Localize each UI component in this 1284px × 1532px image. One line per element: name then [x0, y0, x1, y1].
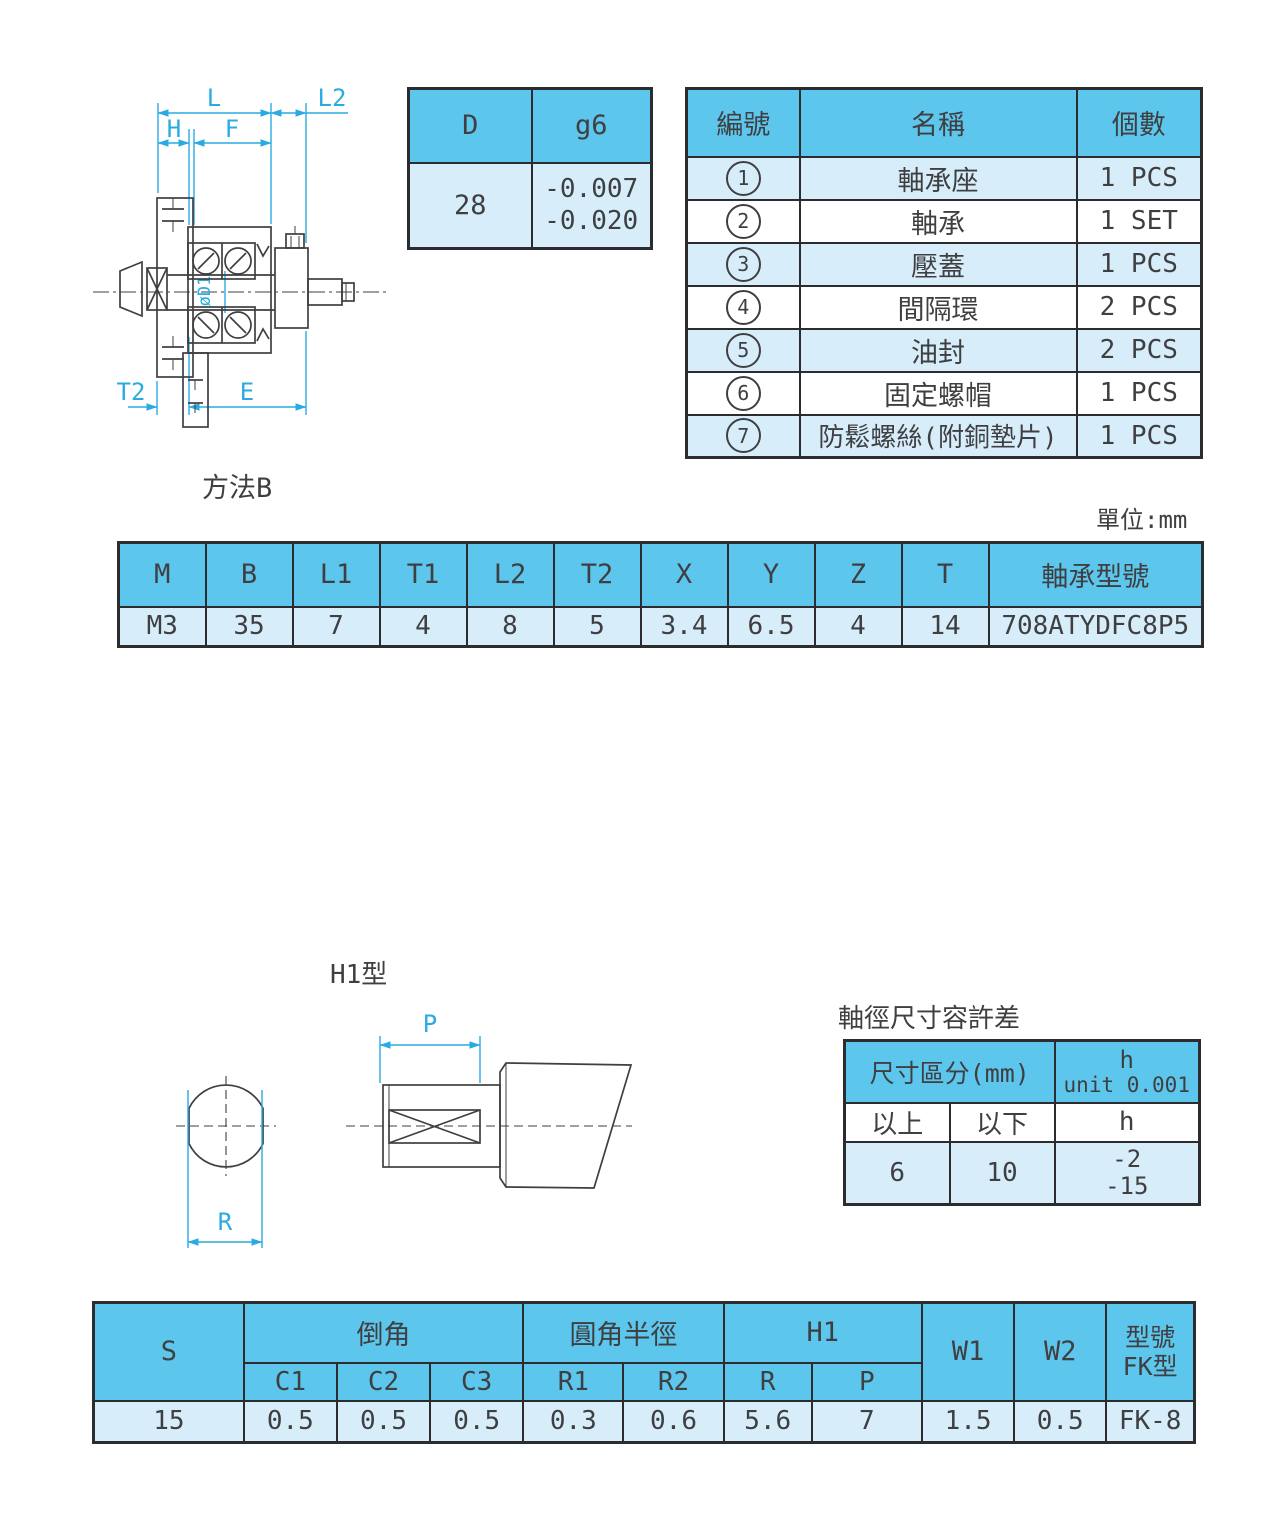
assembly-section-geometry [120, 198, 354, 427]
unit-label: 單位:mm [1096, 500, 1187, 535]
dim-value: 35 [206, 607, 293, 647]
spec-group-h1: H1 [724, 1303, 922, 1363]
parts-col-qty: 個數 [1077, 89, 1202, 157]
spec-value: 15 [94, 1401, 244, 1443]
shaft-fit-table: D g6 28 -0.007 -0.020 [407, 87, 653, 250]
part-number-badge: 2 [726, 204, 761, 239]
parts-list-table: 編號 名稱 個數 1 軸承座 1 PCS 2 軸承 1 SET 3 壓蓋 1 P… [685, 87, 1203, 459]
spec-sub-col: R1 [523, 1363, 623, 1401]
shaft-end-drawing: P R [150, 1000, 700, 1270]
spec-value: 0.5 [1014, 1401, 1106, 1443]
dim-col: L2 [467, 543, 554, 607]
dim-col: T [902, 543, 989, 607]
fit-d-value: 28 [409, 163, 532, 249]
part-name: 防鬆螺絲(附銅墊片) [800, 415, 1077, 458]
dim-col-bearing-model: 軸承型號 [989, 543, 1203, 607]
datasheet-page: L L2 H F T2 E øD1 [0, 0, 1284, 1532]
shaft-tolerance-table: 尺寸區分(mm) h unit 0.001 以上 以下 h 6 10 -2 -1… [843, 1039, 1201, 1206]
dim-col: Y [728, 543, 815, 607]
parts-col-name: 名稱 [800, 89, 1077, 157]
part-qty: 1 PCS [1077, 157, 1202, 200]
dim-col: Z [815, 543, 902, 607]
method-label: 方法B [202, 466, 272, 505]
part-number-badge: 4 [726, 290, 761, 325]
dimension-extension-lines [157, 103, 306, 415]
tolerance-under-value: 10 [950, 1142, 1055, 1205]
spec-value: 0.3 [523, 1401, 623, 1443]
dim-label-H: H [167, 115, 181, 143]
parts-row: 4 間隔環 2 PCS [687, 286, 1202, 329]
spec-col-w1: W1 [922, 1303, 1014, 1401]
spec-value-model: FK-8 [1106, 1401, 1194, 1443]
bearing-assembly-drawing: L L2 H F T2 E øD1 [90, 85, 390, 430]
parts-col-no: 編號 [687, 89, 800, 157]
spec-sub-col: R2 [623, 1363, 723, 1401]
tolerance-table-title: 軸徑尺寸容許差 [838, 998, 1020, 1035]
fit-col-g6: g6 [532, 89, 652, 163]
part-number-badge: 3 [726, 247, 761, 282]
fit-col-d: D [409, 89, 532, 163]
parts-row: 5 油封 2 PCS [687, 329, 1202, 372]
spec-col-model: 型號 FK型 [1106, 1303, 1194, 1401]
part-name: 油封 [800, 329, 1077, 372]
dim-col: L1 [293, 543, 380, 607]
tolerance-h-value: -2 -15 [1055, 1142, 1200, 1205]
parts-row: 6 固定螺帽 1 PCS [687, 372, 1202, 415]
parts-row: 2 軸承 1 SET [687, 200, 1202, 243]
tolerance-over-value: 6 [845, 1142, 950, 1205]
dim-col: B [206, 543, 293, 607]
parts-row: 3 壓蓋 1 PCS [687, 243, 1202, 286]
spec-value: 1.5 [922, 1401, 1014, 1443]
spec-sub-col: C2 [337, 1363, 430, 1401]
dim-col: T1 [380, 543, 467, 607]
part-number-badge: 6 [726, 376, 761, 411]
dim-value: 14 [902, 607, 989, 647]
spec-sub-col: P [812, 1363, 922, 1401]
tolerance-h-header: h unit 0.001 [1055, 1041, 1200, 1103]
part-qty: 1 SET [1077, 200, 1202, 243]
spec-col-s: S [94, 1303, 244, 1401]
dim-value: 5 [554, 607, 641, 647]
dim-value: 7 [293, 607, 380, 647]
spec-col-w2: W2 [1014, 1303, 1106, 1401]
spec-value: 0.5 [337, 1401, 430, 1443]
part-name: 軸承 [800, 200, 1077, 243]
h1-type-label: H1型 [330, 954, 387, 991]
dim-label-F: F [225, 115, 239, 143]
dim-col: T2 [554, 543, 641, 607]
dim-label-L: L [207, 84, 221, 112]
dim-label-E: E [240, 378, 254, 406]
part-qty: 2 PCS [1077, 286, 1202, 329]
part-qty: 1 PCS [1077, 372, 1202, 415]
tolerance-col-under: 以下 [950, 1103, 1055, 1142]
dim-value: 4 [815, 607, 902, 647]
part-qty: 2 PCS [1077, 329, 1202, 372]
dim-value-bearing-model: 708ATYDFC8P5 [989, 607, 1203, 647]
dimension-table: M B L1 T1 L2 T2 X Y Z T 軸承型號 M3 35 7 4 8… [117, 541, 1204, 648]
shaft-spec-table: S 倒角 圓角半徑 H1 W1 W2 型號 FK型 C1 C2 C3 R1 R2… [92, 1301, 1196, 1444]
spec-group-chamfer: 倒角 [244, 1303, 524, 1363]
part-name: 間隔環 [800, 286, 1077, 329]
spec-value: 7 [812, 1401, 922, 1443]
spec-value: 0.5 [430, 1401, 523, 1443]
dim-value: 3.4 [641, 607, 728, 647]
tolerance-col-over: 以上 [845, 1103, 950, 1142]
spec-sub-col: R [724, 1363, 812, 1401]
parts-row: 1 軸承座 1 PCS [687, 157, 1202, 200]
part-name: 壓蓋 [800, 243, 1077, 286]
dim-value: 4 [380, 607, 467, 647]
part-number-badge: 7 [726, 418, 761, 453]
part-qty: 1 PCS [1077, 243, 1202, 286]
spec-value: 0.6 [623, 1401, 723, 1443]
dim-value: M3 [119, 607, 206, 647]
fit-g6-value: -0.007 -0.020 [532, 163, 652, 249]
spec-value: 0.5 [244, 1401, 337, 1443]
spec-value: 5.6 [724, 1401, 812, 1443]
dim-col: M [119, 543, 206, 607]
parts-row: 7 防鬆螺絲(附銅墊片) 1 PCS [687, 415, 1202, 458]
dim-label-R: R [218, 1208, 233, 1236]
part-number-badge: 1 [726, 161, 761, 196]
dim-label-P: P [423, 1010, 437, 1038]
dim-label-shaft-diameter: øD1 [195, 276, 215, 307]
dim-label-T2: T2 [117, 378, 146, 406]
dim-value: 6.5 [728, 607, 815, 647]
part-name: 軸承座 [800, 157, 1077, 200]
spec-sub-col: C3 [430, 1363, 523, 1401]
tolerance-range-header: 尺寸區分(mm) [845, 1041, 1055, 1103]
dim-value: 8 [467, 607, 554, 647]
part-qty: 1 PCS [1077, 415, 1202, 458]
dim-col: X [641, 543, 728, 607]
dim-label-L2: L2 [318, 84, 347, 112]
part-name: 固定螺帽 [800, 372, 1077, 415]
spec-group-fillet: 圓角半徑 [523, 1303, 723, 1363]
part-number-badge: 5 [726, 333, 761, 368]
spec-sub-col: C1 [244, 1363, 337, 1401]
tolerance-col-h: h [1055, 1103, 1200, 1142]
